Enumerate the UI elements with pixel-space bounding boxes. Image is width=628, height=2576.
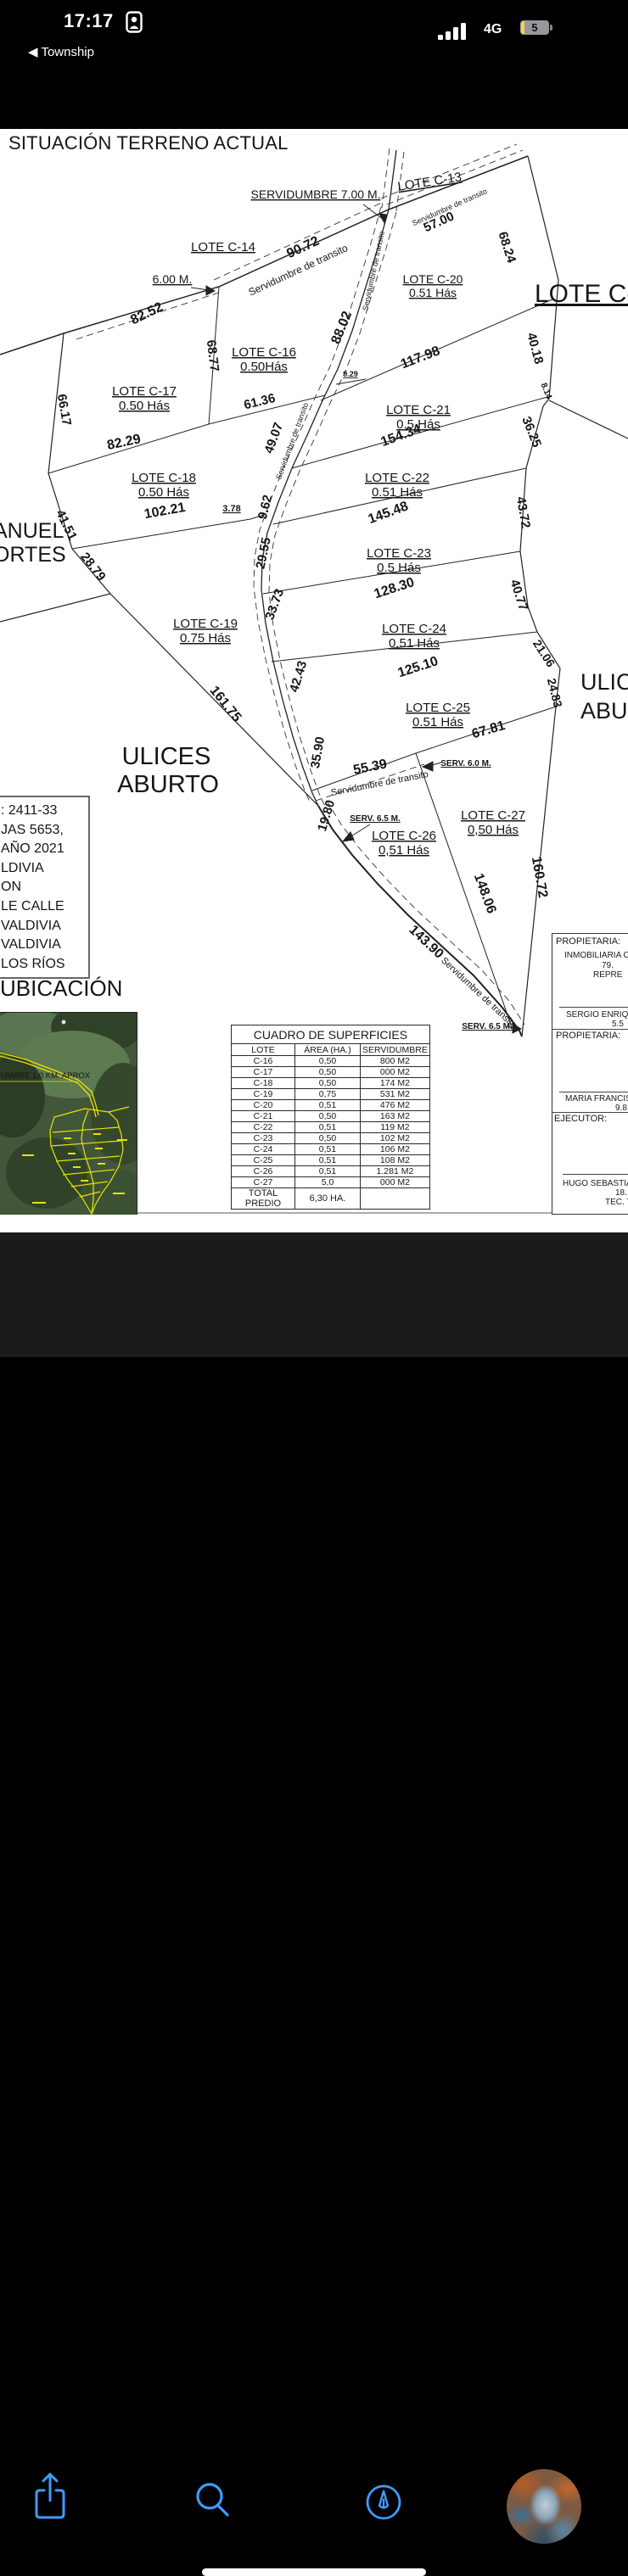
info-lines: : 2411-33JAS 5653,AÑO 2021LDIVIAONLE CAL…	[0, 797, 88, 974]
map-label: SERVIDUMBRE 7.00 M.	[250, 187, 380, 201]
table-cell: 476 M2	[361, 1100, 430, 1111]
table-cell: 5,0	[295, 1177, 361, 1188]
map-label: 161.75	[206, 684, 244, 725]
map-label: 125.10	[396, 654, 440, 680]
status-portrait-icon	[126, 11, 143, 33]
map-label: ABURTO	[117, 771, 219, 798]
table-cell: C-20	[232, 1100, 295, 1111]
map-label: 128.30	[373, 575, 417, 601]
info-line: VALDIVIA	[1, 936, 88, 955]
network-type: 4G	[484, 22, 502, 37]
map-label: LOTE C-27	[461, 808, 525, 823]
info-line: : 2411-33	[1, 802, 88, 821]
table-cell: 174 M2	[361, 1078, 430, 1089]
table-cell: 531 M2	[361, 1089, 430, 1100]
table-cell: 106 M2	[361, 1144, 430, 1155]
owners-panel-line: MARIA FRANCIS	[565, 1094, 628, 1104]
owners-panel-line: REPRE	[593, 970, 622, 980]
map-label: 68.77	[204, 339, 221, 372]
home-indicator[interactable]	[202, 2568, 426, 2576]
map-label: 24.83	[545, 677, 565, 709]
table-row: C-200,51476 M2	[232, 1100, 430, 1111]
table-cell: 0,75	[295, 1089, 361, 1100]
markup-pen-icon[interactable]	[365, 2484, 404, 2523]
title-info-box: : 2411-33JAS 5653,AÑO 2021LDIVIAONLE CAL…	[0, 796, 90, 979]
map-label: 43.72	[513, 495, 533, 529]
map-label: LOTE C-19	[173, 617, 238, 631]
map-label: LOTE C-22	[365, 471, 429, 485]
bottom-toolbar	[0, 1232, 628, 1357]
map-label: 36.25	[519, 415, 544, 450]
owners-panel-line: 5.5	[612, 1020, 624, 1029]
map-label: 148.06	[471, 872, 499, 916]
map-label: 0.75 Hás	[180, 631, 231, 645]
table-cell: 1.281 M2	[361, 1166, 430, 1177]
section-divider	[552, 1112, 628, 1113]
table-row: C-260,511.281 M2	[232, 1166, 430, 1177]
battery-nub	[550, 25, 552, 31]
search-icon[interactable]	[192, 2479, 234, 2522]
aerial-location-map[interactable]: UMBRE 1.0 KM. APROX	[0, 1012, 137, 1215]
table-cell: C-27	[232, 1177, 295, 1188]
table-cell: C-16	[232, 1056, 295, 1067]
status-time: 17:17	[64, 10, 114, 32]
owners-panel-line: PROPIETARIA:	[556, 1031, 620, 1041]
map-label: 40.77	[507, 578, 530, 612]
map-label: ULICES	[122, 743, 211, 770]
map-label: 117.98	[399, 344, 442, 372]
table-cell: 119 M2	[361, 1122, 430, 1133]
table-row: C-240,51106 M2	[232, 1144, 430, 1155]
map-label: LOTE C-23	[367, 546, 431, 561]
map-label: Servidumbre de transito	[330, 769, 429, 798]
table-cell: 0,50	[295, 1056, 361, 1067]
map-label: 160.72	[529, 856, 550, 899]
leader-arrows	[191, 204, 521, 1033]
map-label: 19.80	[315, 798, 338, 833]
table-cell: 0,51	[295, 1100, 361, 1111]
map-label: 145.48	[367, 499, 411, 527]
map-label: 0,50 Hás	[468, 823, 519, 837]
map-label: SERV. 6.0 M.	[440, 759, 491, 768]
map-label: 0.5 Hás	[377, 561, 421, 575]
map-label: 61.36	[243, 391, 278, 413]
table-cell: 0,51	[295, 1122, 361, 1133]
map-label: 0,51 Hás	[378, 843, 429, 858]
map-label: 143.90	[406, 923, 446, 962]
map-label: 21.06	[530, 637, 558, 669]
map-label: 3.78	[222, 504, 240, 514]
map-label: LOTE C-25	[406, 701, 470, 715]
owners-panel-line: EJECUTOR:	[554, 1114, 607, 1124]
table-cell: 102 M2	[361, 1133, 430, 1144]
ubicacion-heading: UBICACIÓN	[0, 975, 122, 1002]
map-label: ABURTO	[580, 698, 628, 724]
map-label: LOTE C-16	[232, 345, 296, 360]
table-cell: 800 M2	[361, 1056, 430, 1067]
map-label: 0.50 Hás	[119, 399, 170, 413]
table-cell: C-24	[232, 1144, 295, 1155]
table-row: C-210,50163 M2	[232, 1111, 430, 1122]
owners-panel-line: SERGIO ENRIQ	[566, 1010, 628, 1020]
map-label: 0.51 Hás	[389, 636, 440, 651]
aerial-caption: UMBRE 1.0 KM. APROX	[1, 1071, 91, 1081]
col-area: ÁREA (HA.)	[295, 1044, 361, 1056]
table-row: C-250,51108 M2	[232, 1155, 430, 1166]
map-label: 82.52	[128, 299, 165, 327]
map-label: 40.18	[524, 332, 546, 366]
table-cell: 0,51	[295, 1155, 361, 1166]
table-cell: C-17	[232, 1067, 295, 1078]
map-label: 0.51 Hás	[412, 715, 463, 729]
table-row: C-275,0000 M2	[232, 1177, 430, 1188]
map-label: Servidumbre de transito	[361, 231, 386, 312]
status-back-to-app[interactable]: ◀ Township	[28, 44, 94, 59]
earth-hands-photo-button[interactable]	[507, 2469, 581, 2544]
signature-line	[559, 1092, 628, 1092]
owners-panel: PROPIETARIA:INMOBILIARIA C79.REPRESERGIO…	[552, 933, 628, 1215]
nav-bar: Atrás MODIFICACION PREDIO CEMENTE...	[0, 76, 628, 129]
signature-line	[559, 1007, 628, 1008]
owners-panel-line: HUGO SEBASTIA	[563, 1179, 628, 1188]
table-row: C-230,50102 M2	[232, 1133, 430, 1144]
table-cell: 0,50	[295, 1133, 361, 1144]
owners-panel-line: 79.	[602, 961, 614, 970]
map-label: SERV. 6.5 M.	[462, 1022, 513, 1031]
map-label: 102.21	[143, 500, 187, 522]
table-header-row: LOTE ÁREA (HA.) SERVIDUMBRE	[232, 1044, 430, 1056]
map-label: 29.55	[253, 536, 273, 570]
surfaces-table: CUADRO DE SUPERFICIES LOTE ÁREA (HA.) SE…	[231, 1025, 430, 1210]
owners-panel-line: 18.	[615, 1188, 627, 1198]
info-line: LE CALLE	[1, 897, 88, 917]
table-cell: 0,50	[295, 1078, 361, 1089]
table-cell: 0,50	[295, 1111, 361, 1122]
map-label: 68.24	[495, 230, 519, 265]
map-label: ANUEL	[0, 519, 64, 543]
map-label: LOTE C-13	[397, 170, 463, 194]
table-cell: 0,51	[295, 1144, 361, 1155]
status-bar: 17:17 ◀ Township 4G 5	[0, 0, 628, 76]
section-divider	[552, 1029, 628, 1030]
table-row: C-160,50800 M2	[232, 1056, 430, 1067]
property-boundary	[0, 156, 628, 1037]
map-label: 42.43	[287, 659, 310, 694]
table-row: C-180,50174 M2	[232, 1078, 430, 1089]
info-line: JAS 5653,	[1, 821, 88, 841]
table-cell: C-25	[232, 1155, 295, 1166]
map-label: ULICES	[580, 669, 628, 695]
map-label: LOTE C-26	[372, 829, 436, 843]
owners-panel-line: PROPIETARIA:	[556, 936, 620, 947]
info-line: LDIVIA	[1, 859, 88, 879]
map-label: SERV. 6.5 M.	[350, 814, 401, 824]
table-cell: 000 M2	[361, 1177, 430, 1188]
col-lote: LOTE	[232, 1044, 295, 1056]
map-label: 28.79	[77, 550, 109, 584]
info-line: AÑO 2021	[1, 840, 88, 859]
table-row: C-190,75531 M2	[232, 1089, 430, 1100]
map-label: 66.17	[54, 393, 74, 427]
map-label: LOTE C-20	[403, 272, 463, 286]
map-label: 9.62	[255, 494, 276, 521]
table-total-row: TOTAL PREDIO 6,30 HA.	[232, 1188, 430, 1210]
battery-percent: 5	[520, 20, 549, 35]
map-label: 0.50 Hás	[138, 485, 189, 500]
table-cell: 000 M2	[361, 1067, 430, 1078]
map-labels: SERVIDUMBRE 7.00 M.LOTE C-13Servidumbre …	[0, 170, 628, 1031]
map-label: 88.02	[328, 309, 355, 346]
map-label: LOTE C-18	[132, 471, 196, 485]
table-row: C-170,50000 M2	[232, 1067, 430, 1078]
map-label: 6.00 M.	[153, 272, 193, 286]
col-servidumbre: SERVIDUMBRE	[361, 1044, 430, 1056]
info-line: ON	[1, 878, 88, 897]
map-label: 9.29	[343, 370, 358, 378]
battery-icon: 5	[520, 20, 549, 35]
map-label: LOTE C-15	[535, 280, 628, 308]
info-line: LOS RÍOS	[1, 955, 88, 975]
map-label: 0.51 Hás	[409, 286, 457, 299]
table-title: CUADRO DE SUPERFICIES	[232, 1025, 430, 1044]
owners-panel-line: INMOBILIARIA C	[564, 951, 628, 960]
signature-line	[563, 1174, 628, 1175]
total-empty	[361, 1188, 430, 1210]
map-label: 0.51 Hás	[372, 485, 423, 500]
map-label: 49.07	[261, 421, 286, 455]
table-cell: C-23	[232, 1133, 295, 1144]
map-label: 35.90	[308, 735, 328, 769]
table-cell: 108 M2	[361, 1155, 430, 1166]
map-label: LOTE C-14	[191, 240, 255, 254]
owners-panel-line: TEC. T	[605, 1198, 628, 1207]
table-cell: 163 M2	[361, 1111, 430, 1122]
total-label: TOTAL PREDIO	[232, 1188, 295, 1210]
map-label: LOTE C-21	[386, 403, 451, 417]
map-label: 33.73	[262, 587, 287, 622]
back-triangle-icon: ◀	[28, 45, 41, 59]
total-value: 6,30 HA.	[295, 1188, 361, 1210]
map-label: 8.14	[539, 382, 554, 401]
map-label: 55.39	[352, 757, 389, 777]
signal-bars-icon	[438, 22, 477, 42]
table-cell: 0,50	[295, 1067, 361, 1078]
table-cell: C-21	[232, 1111, 295, 1122]
info-line: VALDIVIA	[1, 917, 88, 936]
map-label: ORTES	[0, 543, 66, 567]
table-row: C-220,51119 M2	[232, 1122, 430, 1133]
map-label: 67.81	[470, 718, 507, 741]
table-cell: 0,51	[295, 1166, 361, 1177]
table-cell: C-19	[232, 1089, 295, 1100]
share-icon[interactable]	[31, 2469, 70, 2522]
table-cell: C-26	[232, 1166, 295, 1177]
map-label: 0.50Hás	[240, 360, 288, 374]
map-label: LOTE C-17	[112, 384, 177, 399]
table-cell: C-18	[232, 1078, 295, 1089]
map-label: LOTE C-24	[382, 622, 446, 636]
table-cell: C-22	[232, 1122, 295, 1133]
